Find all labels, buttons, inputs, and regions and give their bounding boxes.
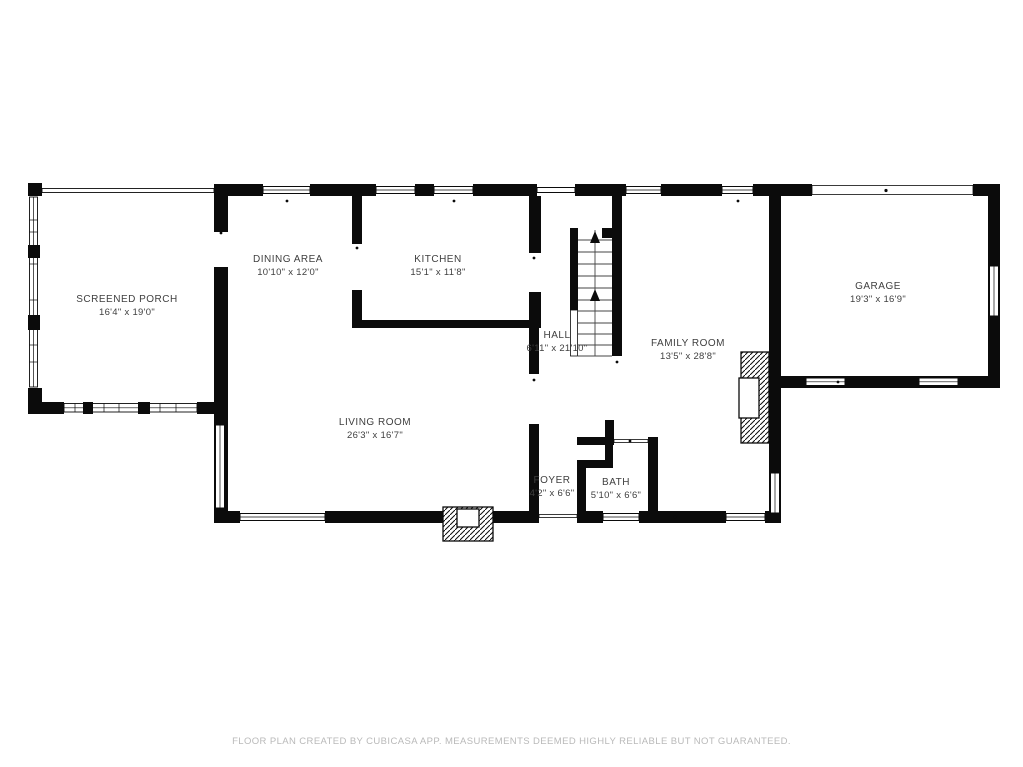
interior-walls [352,196,658,523]
floor-plan-page: SCREENED PORCH 16'4" x 19'0" DINING AREA… [0,0,1023,767]
room-dimensions: 19'3" x 16'9" [850,293,906,306]
entry-door [539,515,577,518]
stairs-up-arrow-icon [590,289,600,301]
garage-door [812,186,973,195]
family-room-fireplace-icon [739,352,769,443]
room-label-dining-area: DINING AREA 10'10" x 12'0" [253,253,323,279]
stairs-up-arrow-icon [590,231,600,243]
room-dimensions: 6'11" x 21'10" [527,342,588,355]
room-name: LIVING ROOM [339,416,411,429]
room-label-family-room: FAMILY ROOM 13'5" x 28'8" [651,337,725,363]
room-label-living-room: LIVING ROOM 26'3" x 16'7" [339,416,411,442]
room-name: BATH [591,476,641,489]
footer-disclaimer: FLOOR PLAN CREATED BY CUBICASA APP. MEAS… [232,736,791,747]
room-label-foyer: FOYER 4'2" x 6'6" [530,474,575,500]
room-label-bath: BATH 5'10" x 6'6" [591,476,641,502]
room-dimensions: 26'3" x 16'7" [339,429,411,442]
room-dimensions: 5'10" x 6'6" [591,489,641,502]
room-dimensions: 4'2" x 6'6" [530,487,575,500]
room-name: GARAGE [850,280,906,293]
floor-plan-drawing [0,0,1023,767]
living-room-fireplace-icon [443,507,493,541]
room-name: FAMILY ROOM [651,337,725,350]
room-dimensions: 10'10" x 12'0" [253,266,323,279]
room-label-screened-porch: SCREENED PORCH 16'4" x 19'0" [76,293,177,319]
room-label-garage: GARAGE 19'3" x 16'9" [850,280,906,306]
room-dimensions: 16'4" x 19'0" [76,306,177,319]
room-name: HALL [527,329,588,342]
room-name: SCREENED PORCH [76,293,177,306]
room-name: DINING AREA [253,253,323,266]
room-dimensions: 13'5" x 28'8" [651,350,725,363]
room-name: KITCHEN [410,253,465,266]
room-name: FOYER [530,474,575,487]
room-label-hall: HALL 6'11" x 21'10" [527,329,588,355]
room-dimensions: 15'1" x 11'8" [410,266,465,279]
room-label-kitchen: KITCHEN 15'1" x 11'8" [410,253,465,279]
